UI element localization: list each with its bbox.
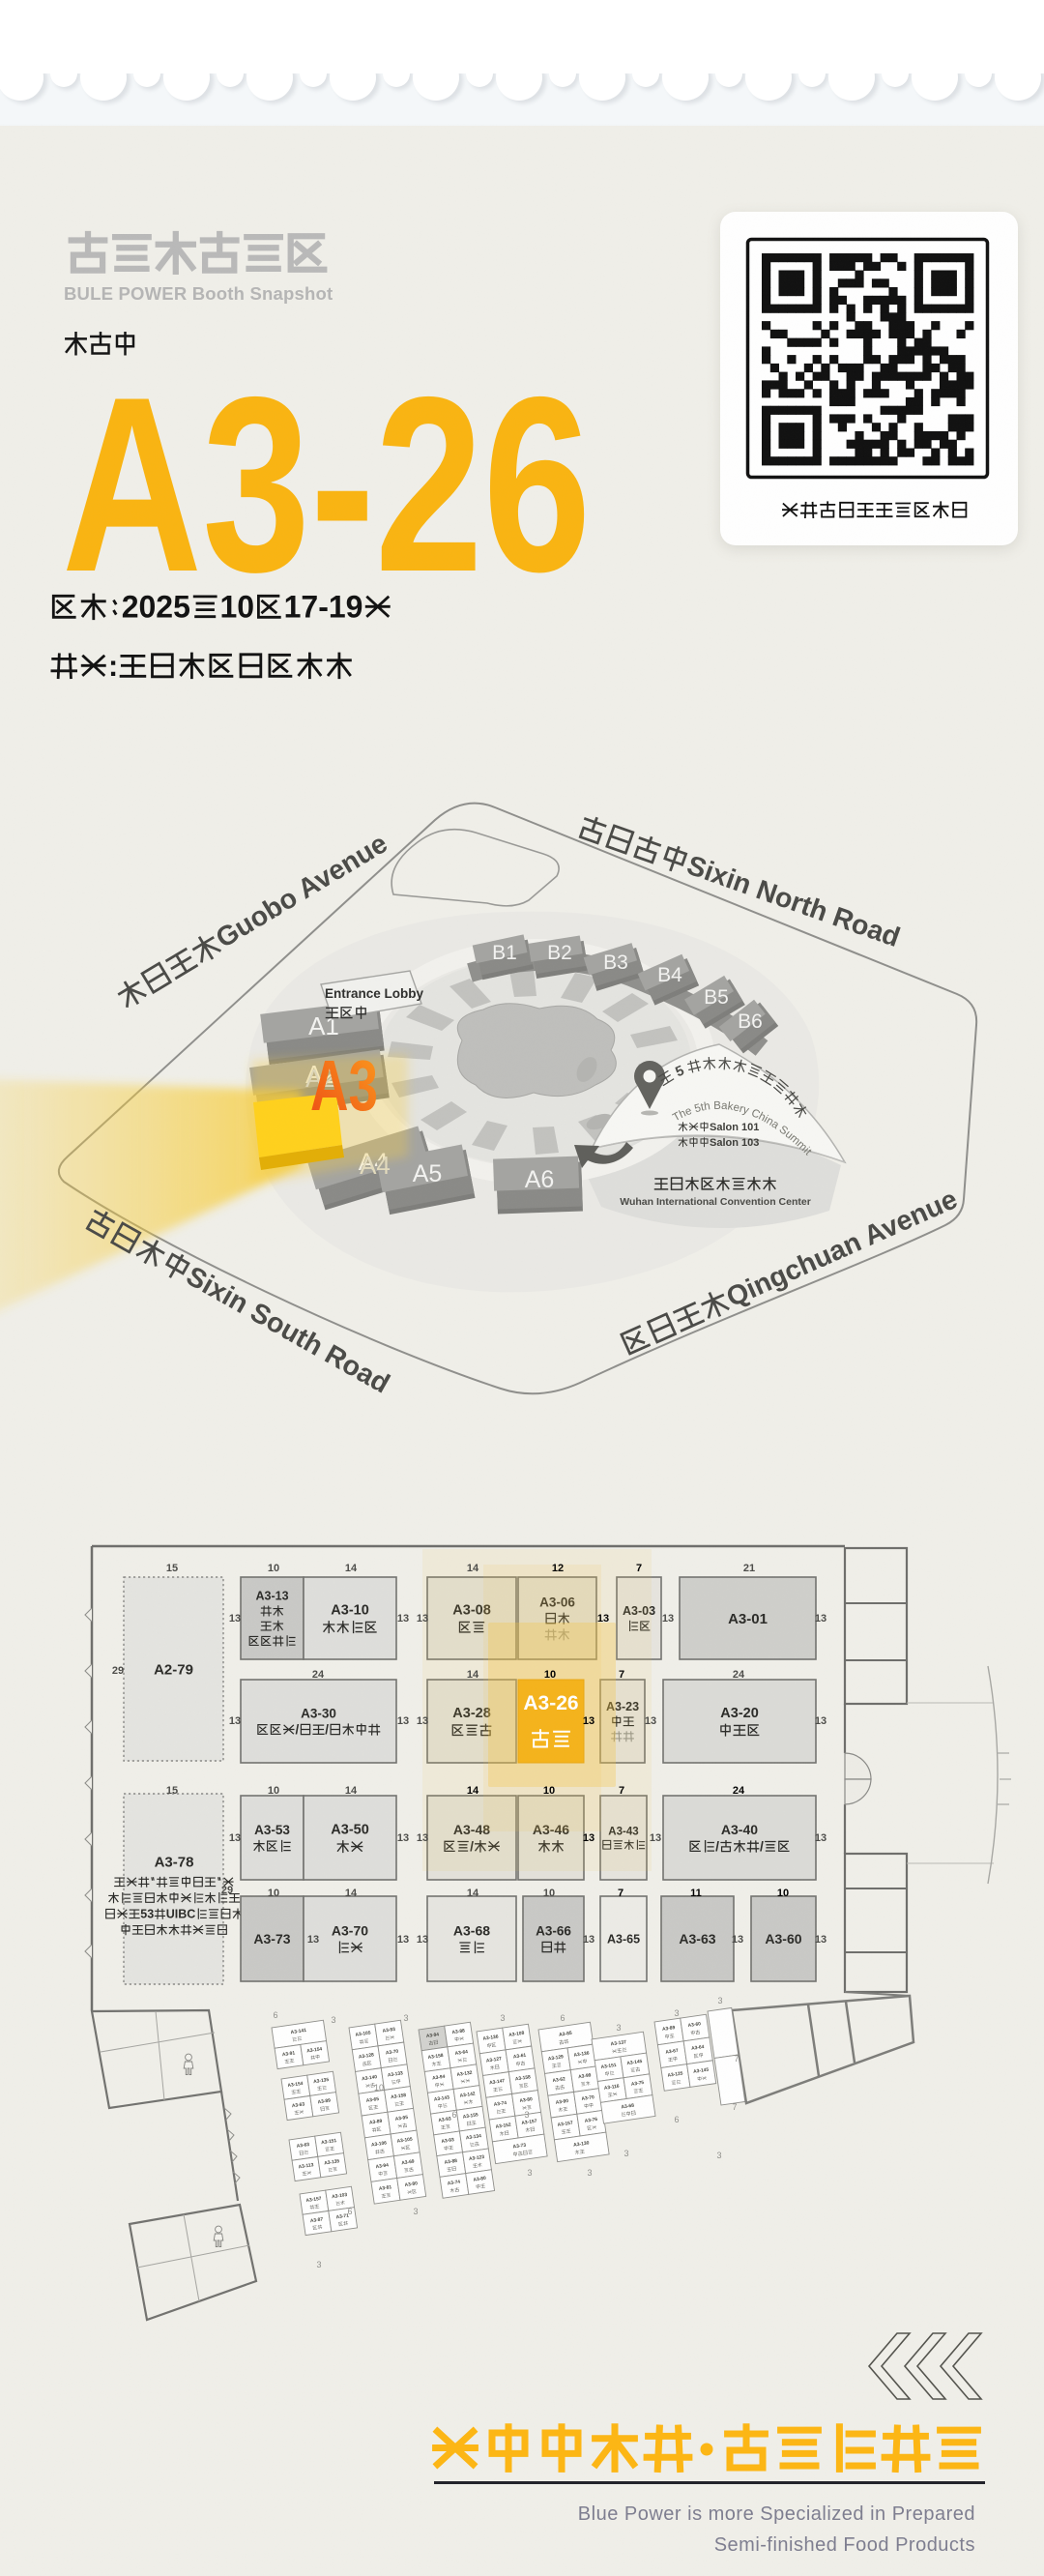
svg-text:Semi-finished Food Products: Semi-finished Food Products — [714, 2534, 975, 2556]
svg-text:Blue Power is more Specialized: Blue Power is more Specialized in Prepar… — [578, 2503, 975, 2525]
